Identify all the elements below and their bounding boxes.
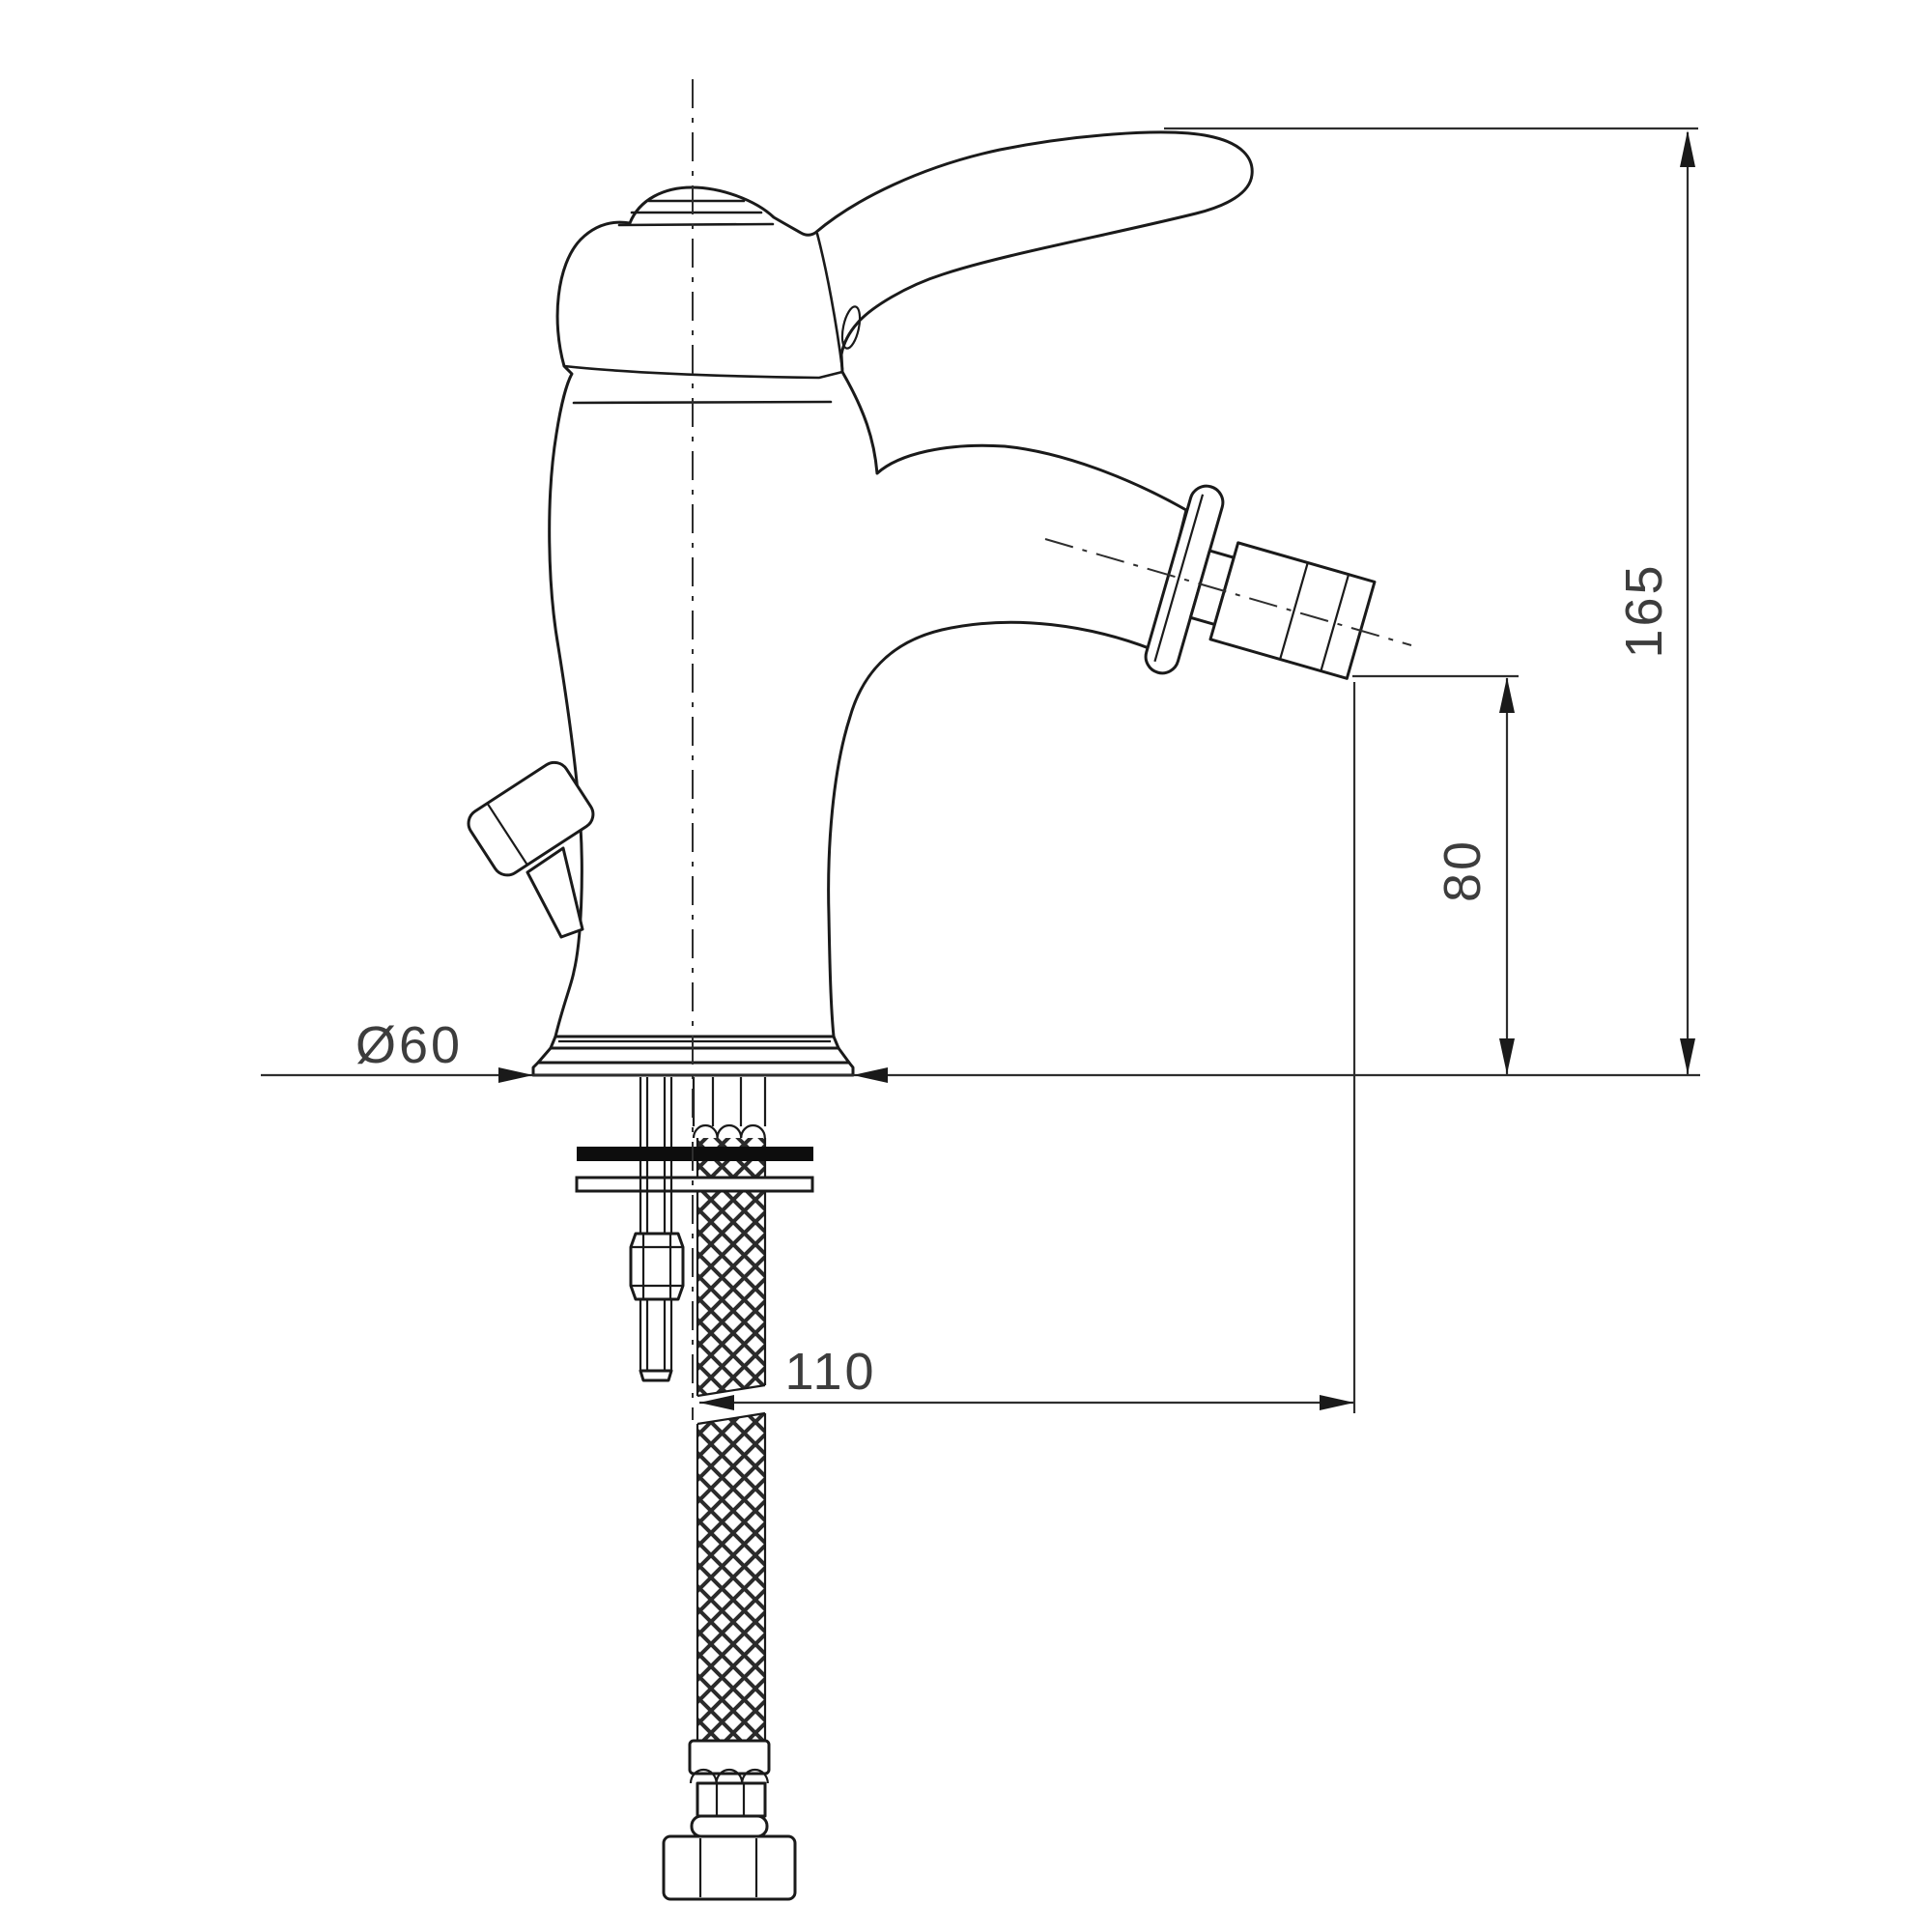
- drain-lever-stem: [527, 848, 582, 937]
- hose-collar: [692, 1816, 767, 1836]
- stud-nut: [631, 1234, 683, 1299]
- dim-hose-length: 110: [784, 1343, 876, 1401]
- hose-hex-adapter: [697, 1783, 765, 1816]
- rubber-washer: [577, 1147, 813, 1161]
- supply-hose: [664, 1077, 795, 1899]
- metal-washer: [577, 1178, 812, 1191]
- hose-ferrule: [690, 1741, 769, 1774]
- aerator-barrel: [1210, 543, 1375, 678]
- dim-base-diameter: Ø60: [355, 1016, 463, 1074]
- body-outline: [550, 132, 1253, 1037]
- mounting-stud: [631, 1077, 683, 1380]
- stud-tip: [640, 1371, 671, 1380]
- hose-end-nut: [664, 1836, 795, 1899]
- faucet-body: [550, 132, 1253, 1037]
- dim-total-height: 165: [1615, 562, 1673, 658]
- dimensions: Ø60 165 80 110: [261, 128, 1700, 1413]
- faucet-technical-drawing: Ø60 165 80 110: [0, 0, 1932, 1932]
- dim-outlet-height: 80: [1434, 838, 1492, 902]
- drawing-canvas: Ø60 165 80 110: [0, 0, 1932, 1932]
